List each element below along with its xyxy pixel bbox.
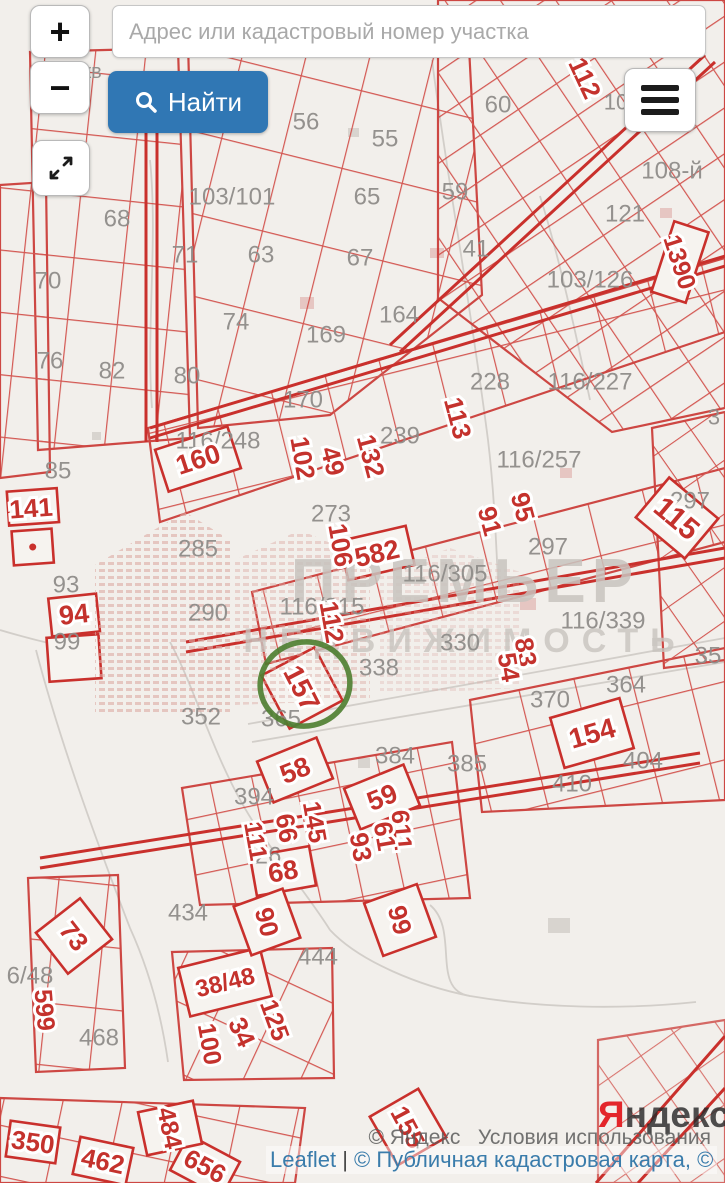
address-number-label: 385 <box>447 750 487 777</box>
address-number-label: 6/48 <box>7 962 54 989</box>
address-number-label: 410 <box>552 770 592 797</box>
address-number-label: 85 <box>45 457 72 484</box>
address-number-label: 3 <box>708 405 720 430</box>
address-number-label: 370 <box>530 686 570 713</box>
address-number-label: 70 <box>35 267 62 294</box>
address-number-label: 468 <box>79 1024 119 1051</box>
address-number-label: 55 <box>372 125 399 152</box>
address-number-label: 338 <box>359 654 399 681</box>
search-icon <box>134 90 158 114</box>
address-number-label: 35 <box>695 642 722 669</box>
address-number-label: 76 <box>37 347 64 374</box>
address-number-label: 228 <box>470 368 510 395</box>
zoom-out-button[interactable]: − <box>30 61 90 114</box>
address-number-label: 394 <box>234 783 274 810</box>
search-input[interactable] <box>112 5 706 58</box>
address-number-label: 297 <box>528 533 568 560</box>
address-number-label: 404 <box>623 747 663 774</box>
parcel-number-label: 54 <box>492 650 527 684</box>
expand-arrows-icon <box>45 152 77 184</box>
address-number-label: 330 <box>440 629 480 656</box>
address-number-label: 65 <box>354 183 381 210</box>
address-number-label: 80 <box>174 362 201 389</box>
address-number-label: 121 <box>605 200 645 227</box>
parcel-number-label: 93 <box>344 830 379 864</box>
parcel-number-label: 94 <box>58 598 91 631</box>
attribution-trailing: , © <box>685 1147 713 1172</box>
address-number-label: 82 <box>99 357 126 384</box>
address-number-label: 60 <box>485 91 512 118</box>
address-number-label: 103/101 <box>189 183 276 210</box>
parcel-number-label: 66 <box>270 811 305 845</box>
hamburger-icon <box>641 85 679 115</box>
address-number-label: 364 <box>606 671 646 698</box>
address-number-label: 41 <box>463 235 490 262</box>
address-number-label: 239 <box>380 422 420 449</box>
address-number-label: 108-й <box>641 157 702 184</box>
attribution-leaflet: Leaflet | © Публичная кадастровая карта,… <box>266 1146 717 1174</box>
leaflet-link[interactable]: Leaflet <box>270 1147 336 1172</box>
address-number-label: 116/339 <box>561 607 646 634</box>
find-button[interactable]: Найти <box>108 71 268 133</box>
cadastral-map[interactable]: ПРЕМЬЕР НЕДВИЖИМОСТЬ кв56556010108-й1216… <box>0 0 725 1183</box>
address-number-label: 164 <box>379 301 419 328</box>
find-button-label: Найти <box>168 87 242 118</box>
attribution-separator: | <box>342 1147 348 1172</box>
address-number-label: 93 <box>53 571 80 598</box>
parcel-number-label: 599 <box>28 988 60 1032</box>
address-number-label: 444 <box>298 943 338 970</box>
fullscreen-button[interactable] <box>32 140 90 196</box>
menu-button[interactable] <box>624 68 696 132</box>
address-number-label: 116/227 <box>548 368 633 395</box>
address-number-label: 116/305 <box>403 560 488 587</box>
parcel-number-label: 141 <box>8 492 53 525</box>
address-number-label: 103/126 <box>547 266 634 293</box>
address-number-label: 384 <box>375 742 415 769</box>
zoom-in-button[interactable]: + <box>30 5 90 58</box>
address-number-label: 71 <box>172 241 199 268</box>
address-number-label: 169 <box>306 321 346 348</box>
parcel-number-label: 350 <box>9 1124 56 1160</box>
parcel-number-label: 68 <box>266 854 301 889</box>
cadastre-map-link[interactable]: © Публичная кадастровая карта <box>354 1147 685 1172</box>
address-number-label: 434 <box>168 899 208 926</box>
address-number-label: 352 <box>181 703 221 730</box>
address-number-label: 170 <box>283 386 323 413</box>
address-number-label: 63 <box>248 241 275 268</box>
address-number-label: 68 <box>104 205 131 232</box>
address-number-label: 56 <box>293 108 320 135</box>
address-number-label: 290 <box>188 599 228 626</box>
address-number-label: 74 <box>223 308 250 335</box>
address-number-label: 59 <box>442 178 469 205</box>
map-screen: ПРЕМЬЕР НЕДВИЖИМОСТЬ кв56556010108-й1216… <box>0 0 725 1183</box>
address-number-label: 67 <box>347 244 374 271</box>
address-number-label: 116/257 <box>497 446 582 473</box>
address-number-label: 285 <box>178 535 218 562</box>
address-number-label: 99 <box>54 628 81 655</box>
